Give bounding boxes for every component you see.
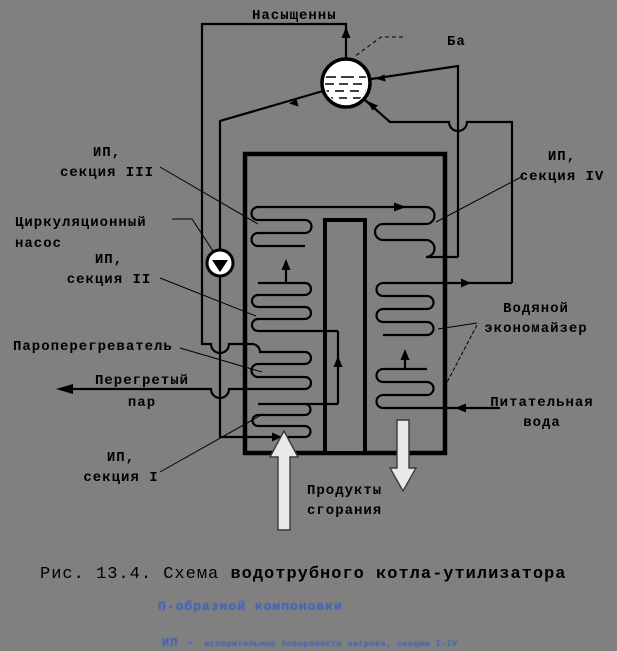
- feed-water-line1: Питательная: [486, 393, 598, 413]
- gas-inlet-arrow: [270, 431, 298, 530]
- section2-riser-arrow: [282, 259, 291, 270]
- circulation-pump-icon: [207, 250, 233, 276]
- leader-economizer-lower: [444, 325, 477, 388]
- economizer-line2: экономайзер: [482, 319, 590, 339]
- superheater-label: Пароперегреватель: [13, 337, 173, 357]
- drum-label: Ба: [447, 32, 466, 52]
- footnote-ip-term: ИП –: [162, 636, 195, 650]
- footnote-ip-definition: ИП – испарительные поверхности нагрева, …: [162, 633, 457, 651]
- feed-water-line2: вода: [486, 413, 598, 433]
- ip-section1-line1: ИП,: [70, 448, 172, 468]
- economizer-outlet-arrow: [461, 279, 471, 288]
- economizer-lower-coil: [377, 369, 500, 408]
- combustion-products-line2: сгорания: [307, 501, 382, 521]
- gas-outlet-arrow: [390, 420, 416, 491]
- ip-section1-line2: секция I: [70, 468, 172, 488]
- leader-drum: [354, 37, 403, 57]
- ip-section1-label: ИП, секция I: [70, 448, 172, 488]
- superheated-steam-label: Перегретый пар: [90, 370, 194, 414]
- superheated-steam-line1: Перегретый: [90, 370, 194, 392]
- pump-label-line1: Циркуляционный: [15, 213, 147, 234]
- duct-divider-wall: [325, 220, 365, 453]
- riser-to-drum-arrow: [375, 75, 386, 82]
- ip-section4-line1: ИП,: [511, 147, 613, 167]
- feed-water-arrow: [455, 404, 466, 413]
- economizer-label: Водяной экономайзер: [482, 299, 590, 339]
- saturated-steam-arrow: [342, 27, 351, 38]
- leader-pump: [172, 219, 213, 251]
- downcomer-pipe: [220, 91, 323, 250]
- drum-shell: [322, 59, 370, 107]
- feed-water-label: Питательная вода: [486, 393, 598, 433]
- ip-section4-line2: секция IV: [511, 167, 613, 187]
- figure-caption-prefix: Рис. 13.4. Схема: [40, 565, 230, 584]
- economizer-connector-arrow: [401, 349, 410, 360]
- footnote-layout-link: П-образной компоновки: [158, 599, 343, 614]
- ip-section2-line2: секция II: [58, 270, 160, 290]
- economizer-line1: Водяной: [482, 299, 590, 319]
- figure-caption-title: водотрубного котла-утилизатора: [230, 565, 566, 584]
- economizer-riser-pipe: [365, 100, 512, 283]
- economizer-upper-coil: [377, 283, 434, 335]
- footnote-ip-text: испарительные поверхности нагрева, секци…: [204, 639, 457, 649]
- ip-section4-label: ИП, секция IV: [511, 147, 613, 187]
- superheated-steam-arrow: [56, 384, 73, 394]
- ip-section3-line2: секция III: [56, 163, 158, 183]
- combustion-products-label: Продукты сгорания: [307, 481, 382, 521]
- ip-section2-line1: ИП,: [58, 250, 160, 270]
- top-crossover-arrow: [394, 203, 406, 212]
- evaporator-section1-coil: [220, 276, 311, 437]
- boiler-diagram-page: Насыщенны Ба ИП, секция III Циркуляционн…: [0, 0, 617, 651]
- ip-section3-label: ИП, секция III: [56, 143, 158, 183]
- saturated-steam-label: Насыщенны: [252, 6, 337, 26]
- figure-caption: Рис. 13.4. Схема водотрубного котла-утил…: [40, 565, 567, 584]
- steam-drum-icon: [322, 59, 370, 107]
- superheated-steam-line2: пар: [90, 392, 194, 414]
- leader-ip2: [160, 278, 256, 316]
- leader-ip1: [160, 414, 263, 472]
- leader-ip4: [436, 176, 523, 222]
- circulation-pump-label: Циркуляционный насос: [15, 213, 147, 255]
- ip-section3-line1: ИП,: [56, 143, 158, 163]
- combustion-products-line1: Продукты: [307, 481, 382, 501]
- ip-section2-label: ИП, секция II: [58, 250, 160, 290]
